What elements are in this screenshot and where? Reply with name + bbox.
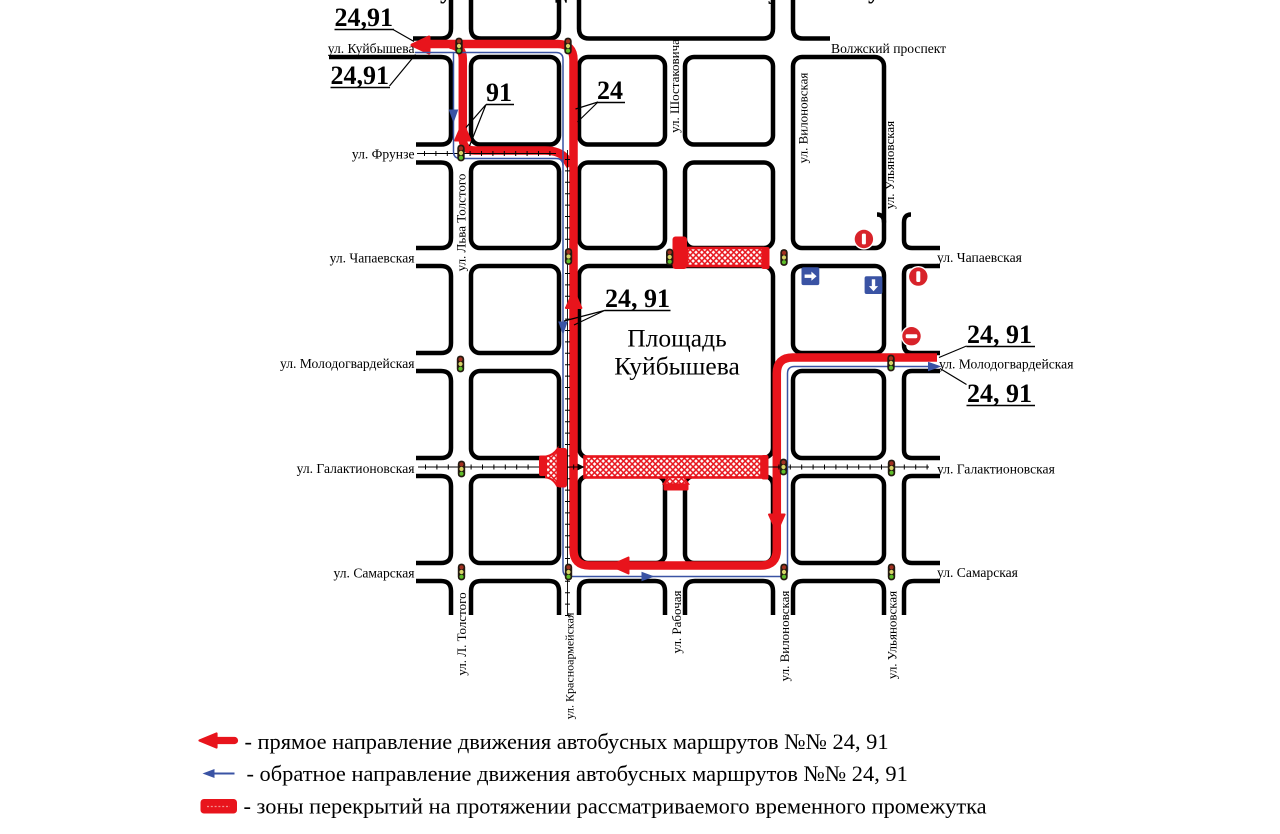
svg-text:ул. Самарская: ул. Самарская — [937, 565, 1018, 580]
svg-text:ул. Куйбышева: ул. Куйбышева — [328, 41, 415, 56]
svg-text:ул. Л. Толстого: ул. Л. Толстого — [454, 592, 469, 675]
svg-text:24,91: 24,91 — [331, 61, 390, 90]
svg-text:ул. Фрунзе: ул. Фрунзе — [352, 147, 415, 162]
svg-text:ул. Ульяновская: ул. Ульяновская — [885, 591, 900, 679]
svg-text:ул. Галактионовская: ул. Галактионовская — [297, 461, 415, 476]
svg-text:ул. Вилоновская: ул. Вилоновская — [796, 73, 811, 164]
svg-text:Волжский проспект: Волжский проспект — [831, 41, 946, 56]
svg-text:ул. Рабочая: ул. Рабочая — [669, 590, 684, 653]
svg-text:ул. Молодогвардейская: ул. Молодогвардейская — [939, 357, 1073, 372]
svg-text:ул. Галактионовская: ул. Галактионовская — [937, 462, 1055, 477]
svg-text:24, 91: 24, 91 — [967, 320, 1032, 349]
svg-text:ул. Красноармейская: ул. Красноармейская — [563, 612, 577, 719]
svg-text:ул. Чапаевская: ул. Чапаевская — [330, 251, 415, 266]
svg-text:ул. Ульяновская: ул. Ульяновская — [882, 121, 897, 209]
svg-text:24, 91: 24, 91 — [605, 284, 670, 313]
svg-text:ул. Молодогвардейская: ул. Молодогвардейская — [280, 356, 414, 371]
svg-text:ул. Чапаевская: ул. Чапаевская — [937, 250, 1022, 265]
svg-text:- зоны перекрытий на протяжени: - зоны перекрытий на протяжении рассматр… — [244, 794, 987, 819]
svg-text:24,91: 24,91 — [335, 3, 394, 32]
svg-text:ул. Самарская: ул. Самарская — [334, 566, 415, 581]
svg-text:ул. Вилоновская: ул. Вилоновская — [777, 591, 792, 682]
svg-text:- обратное направление движени: - обратное направление движения автобусн… — [247, 761, 908, 786]
svg-text:у: у — [868, 0, 880, 5]
svg-text:ул. Льва Толстого: ул. Льва Толстого — [454, 174, 469, 272]
svg-text:91: 91 — [486, 78, 512, 107]
svg-text:Куйбышева: Куйбышева — [614, 352, 740, 381]
svg-text:- прямое направление движения: - прямое направление движения автобусных… — [245, 729, 889, 754]
svg-text:ул. Шостаковича: ул. Шостаковича — [667, 39, 682, 133]
svg-text:24, 91: 24, 91 — [967, 379, 1032, 408]
svg-text:24: 24 — [597, 76, 623, 105]
svg-text:Площадь: Площадь — [627, 324, 726, 353]
